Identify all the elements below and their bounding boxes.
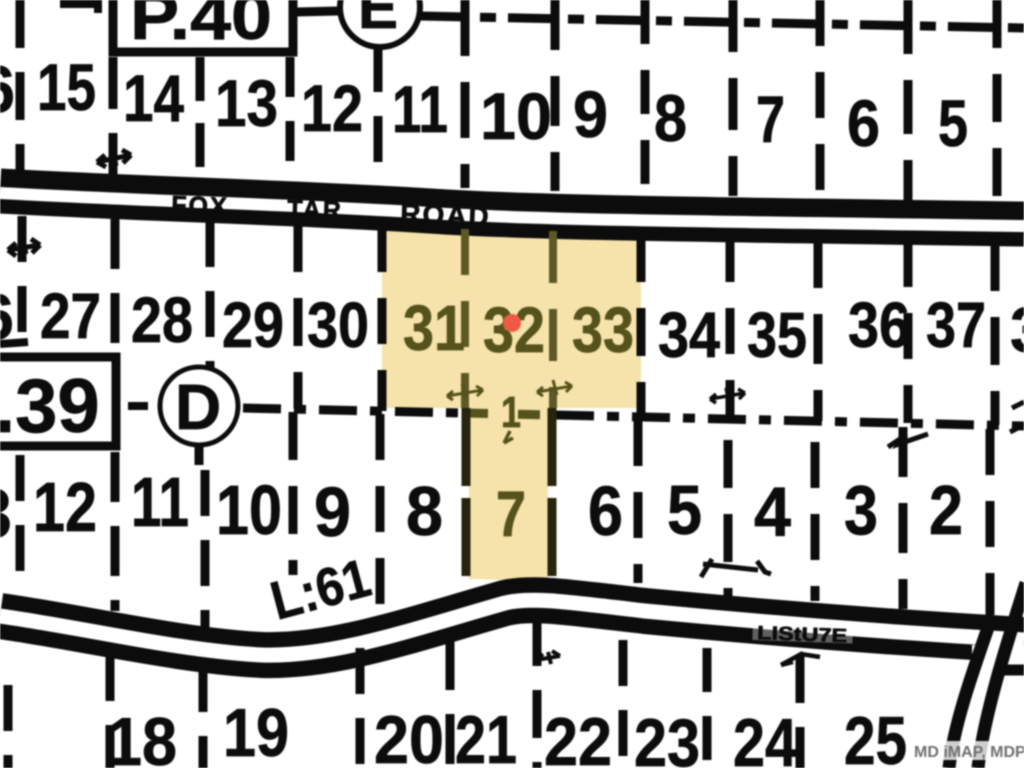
svg-text:12: 12	[301, 71, 363, 145]
svg-text:3: 3	[844, 471, 878, 549]
svg-text:1: 1	[501, 388, 521, 437]
svg-text:18: 18	[107, 704, 177, 768]
svg-text:28: 28	[131, 284, 193, 356]
svg-text:21: 21	[455, 702, 517, 768]
svg-text:4: 4	[754, 473, 791, 551]
svg-text:24: 24	[733, 705, 797, 768]
svg-text:30: 30	[307, 289, 369, 361]
svg-text:22: 22	[544, 704, 612, 768]
svg-text:31: 31	[403, 292, 465, 364]
svg-text:6: 6	[0, 52, 15, 126]
svg-text:34: 34	[658, 299, 720, 371]
svg-text:11: 11	[392, 72, 448, 146]
svg-text:10: 10	[216, 471, 282, 549]
svg-text:37: 37	[926, 289, 986, 361]
svg-text:6: 6	[847, 86, 880, 160]
svg-text:14: 14	[123, 61, 184, 135]
svg-text:6: 6	[0, 281, 14, 353]
svg-text:7: 7	[496, 478, 526, 550]
svg-text:23: 23	[634, 705, 700, 768]
svg-text:27: 27	[40, 280, 101, 352]
svg-text:7: 7	[756, 82, 785, 156]
svg-text:13: 13	[215, 66, 278, 140]
svg-text:ROAD: ROAD	[400, 198, 491, 232]
svg-text:3: 3	[0, 474, 12, 552]
svg-text:9: 9	[573, 77, 608, 151]
svg-text:25: 25	[844, 703, 907, 768]
svg-text:36: 36	[848, 289, 910, 361]
svg-text:2: 2	[929, 471, 963, 549]
svg-text:FOX: FOX	[171, 191, 229, 221]
svg-text:5: 5	[938, 86, 968, 160]
svg-text:35: 35	[747, 299, 807, 371]
svg-text:P.40: P.40	[130, 0, 272, 53]
svg-text:E: E	[358, 0, 398, 41]
svg-text:12: 12	[33, 468, 97, 546]
svg-text:5: 5	[667, 471, 702, 549]
svg-text:MD iMAP, MDP: MD iMAP, MDP	[914, 744, 1024, 761]
svg-text:D: D	[175, 371, 221, 443]
svg-text:TAR: TAR	[287, 195, 343, 225]
svg-text:10: 10	[480, 79, 552, 153]
svg-text:9: 9	[314, 473, 351, 551]
svg-text:8: 8	[406, 472, 443, 550]
svg-text:11: 11	[131, 463, 189, 541]
svg-text:15: 15	[37, 50, 96, 124]
svg-text:29: 29	[222, 289, 284, 361]
svg-text:19: 19	[223, 695, 289, 768]
svg-text:.39: .39	[0, 364, 100, 449]
svg-text:33: 33	[572, 294, 634, 366]
svg-text:6: 6	[588, 472, 623, 550]
svg-text:3: 3	[1010, 294, 1024, 366]
svg-text:20: 20	[374, 702, 444, 768]
svg-text:8: 8	[654, 81, 687, 155]
svg-text:LIStU7E: LIStU7E	[757, 623, 848, 647]
